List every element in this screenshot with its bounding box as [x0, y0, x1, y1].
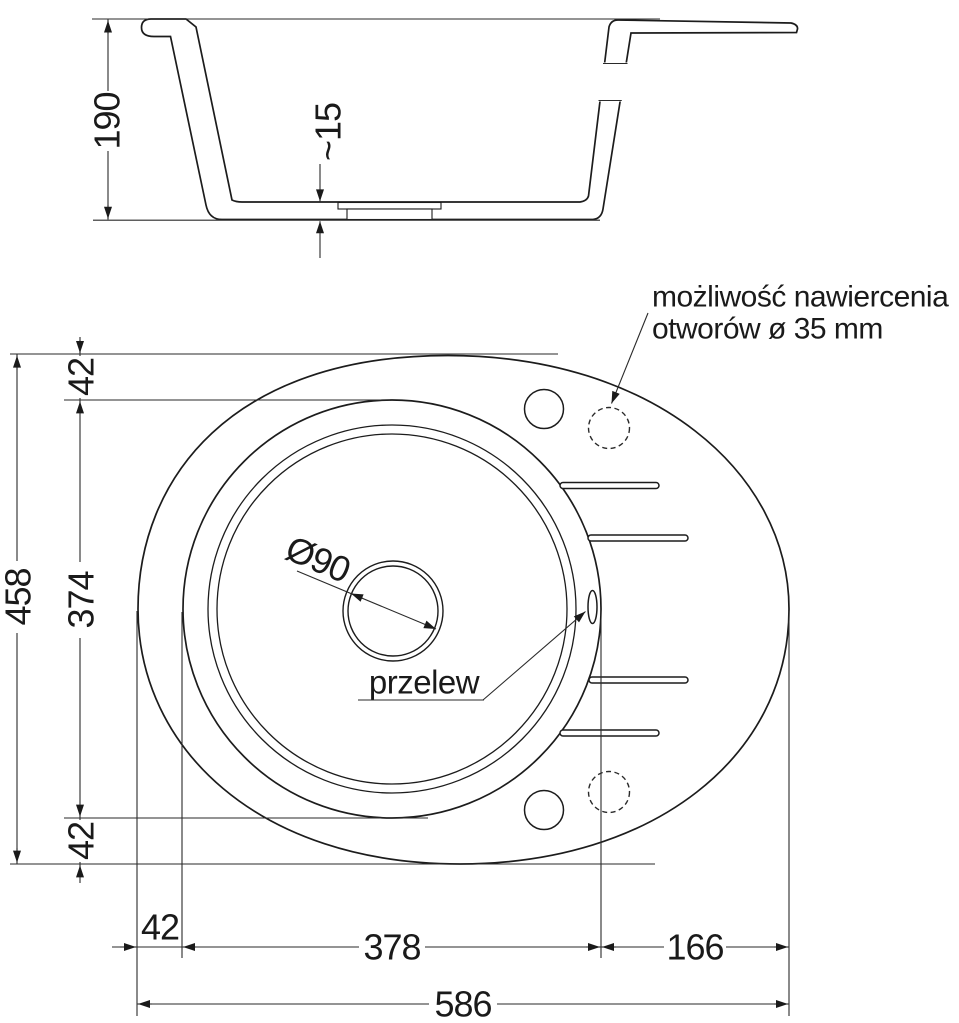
sink-outline [138, 356, 789, 865]
drainboard-groove [560, 483, 659, 489]
faucet-hole-top [525, 390, 564, 429]
drain-diameter-label: Ø90 [280, 527, 356, 590]
dim-586-label: 586 [434, 984, 491, 1023]
technical-drawing-page: 190 ~15 [0, 0, 959, 1023]
dim-15-label: ~15 [308, 103, 349, 161]
drainboard-groove [589, 677, 688, 683]
dim-42-left-label: 42 [141, 907, 179, 948]
drill-hole-dashed-top [589, 408, 630, 449]
drainboard-groove [560, 730, 659, 736]
section-profile [142, 19, 798, 220]
dim-42-top-label: 42 [61, 358, 102, 396]
dim-42-bottom-label: 42 [61, 822, 102, 860]
dim-378-label: 378 [363, 927, 420, 968]
bowl-outer-circle [183, 400, 601, 818]
sink-technical-drawing: 190 ~15 [0, 0, 959, 1023]
drill-note-line2: otworów ø 35 mm [652, 313, 883, 346]
dim-drain-diameter: Ø90 [280, 527, 436, 629]
dim-166-label: 166 [666, 927, 723, 968]
dim-total-depth-458: 458 [0, 355, 39, 864]
dim-190-label: 190 [87, 92, 128, 149]
overflow-slot-section [598, 63, 629, 102]
drainboard-groove [588, 535, 688, 541]
overflow-slot [588, 591, 597, 624]
drill-hole-dashed-bottom [589, 772, 630, 813]
dim-height-190: 190 [87, 20, 128, 220]
dim-374-label: 374 [61, 571, 102, 628]
dim-row-42-378-166: 42 378 166 [112, 907, 789, 968]
drill-note-callout: możliwość nawiercenia otworów ø 35 mm [612, 281, 950, 404]
drain-recess-section [338, 203, 441, 220]
faucet-hole-bottom [525, 791, 564, 830]
cross-section-view: 190 ~15 [87, 19, 798, 258]
dim-bottom-thickness-15: ~15 [308, 103, 349, 258]
plan-view: 458 42 374 42 42 378 166 [0, 281, 949, 1023]
bowl-inner-circle-1 [208, 425, 576, 793]
dim-total-width-586: 586 [137, 984, 789, 1023]
dim-chain-42-374-42: 42 374 42 [61, 337, 102, 883]
overflow-label: przelew [369, 664, 480, 701]
drill-note-line1: możliwość nawiercenia [652, 281, 949, 314]
bowl-inner-circle-2 [217, 434, 567, 784]
dim-458-label: 458 [0, 568, 39, 625]
